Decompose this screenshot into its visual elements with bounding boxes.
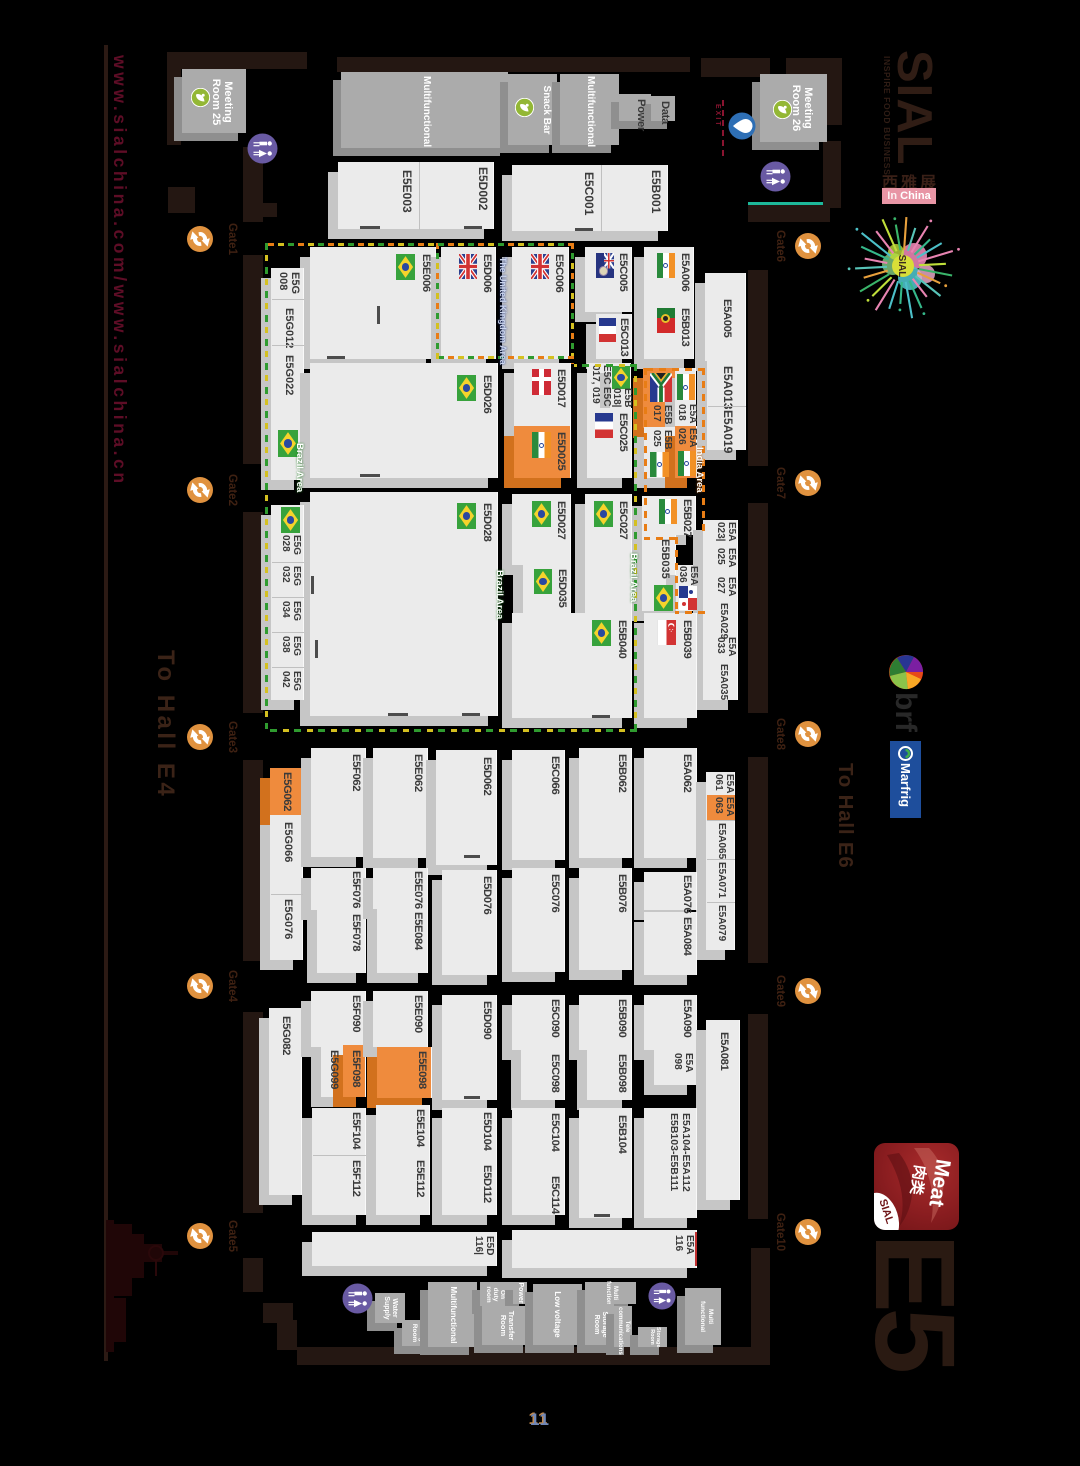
svg-text:SIAL: SIAL: [896, 255, 907, 278]
